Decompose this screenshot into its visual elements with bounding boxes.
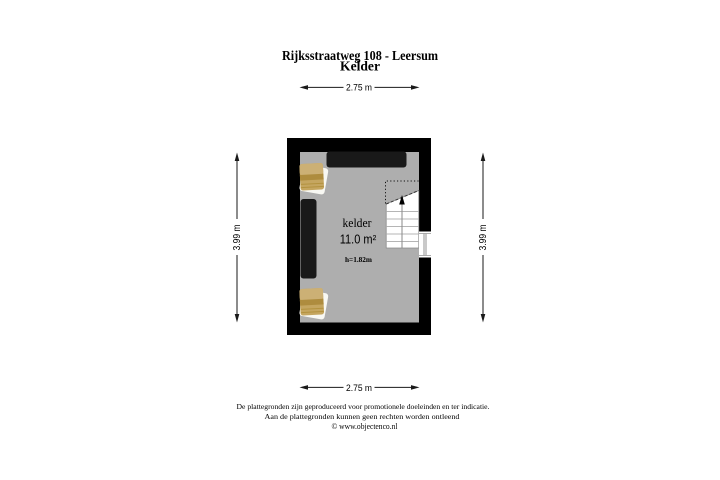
svg-text:11.0 m²: 11.0 m² [340,232,377,247]
svg-text:3.99 m: 3.99 m [478,225,489,251]
svg-text:2.75 m: 2.75 m [346,83,372,94]
svg-text:kelder: kelder [343,216,373,230]
svg-text:h=1.82m: h=1.82m [345,255,373,264]
svg-text:© www.objectenco.nl: © www.objectenco.nl [332,421,399,431]
svg-text:Aan de plattegronden kunnen ge: Aan de plattegronden kunnen geen rechten… [265,412,460,421]
svg-text:2.75 m: 2.75 m [346,383,372,394]
svg-text:Kelder: Kelder [340,59,380,74]
svg-text:De plattegronden zijn geproduc: De plattegronden zijn geproduceerd voor … [237,402,490,411]
svg-text:3.99 m: 3.99 m [232,225,243,251]
